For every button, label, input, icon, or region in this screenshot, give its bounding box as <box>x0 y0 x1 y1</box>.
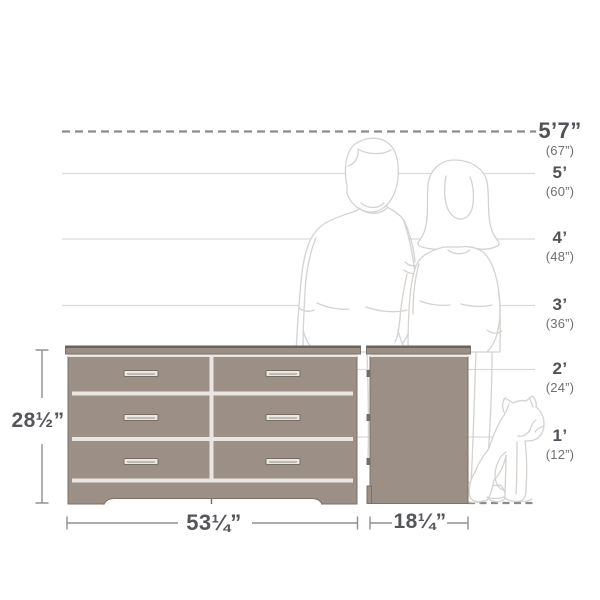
height-mark-sub: (12”) <box>524 446 596 463</box>
drawer-handle <box>266 415 300 421</box>
height-mark-label: 2’ <box>524 359 596 379</box>
side-handle-tab <box>367 458 371 465</box>
diagram-canvas <box>0 0 600 600</box>
dresser-top-edge <box>66 346 361 349</box>
height-mark-sub: (48”) <box>524 248 596 265</box>
drawer-handle <box>124 459 158 465</box>
drawer-gap-center <box>210 357 214 483</box>
drawer-handle <box>124 371 158 377</box>
drawer-handle <box>124 415 158 421</box>
side-top-highlight <box>370 355 468 358</box>
height-mark-sub: (67”) <box>524 142 596 159</box>
height-mark-5ft: 5’ (60”) <box>524 163 596 200</box>
height-mark-2ft: 2’ (24”) <box>524 359 596 396</box>
height-mark-sub: (60”) <box>524 183 596 200</box>
height-mark-label: 5’7” <box>524 119 596 142</box>
side-top-edge <box>367 346 471 349</box>
width-measurement-label: 53¼” <box>166 510 262 536</box>
height-mark-1ft: 1’ (12”) <box>524 426 596 463</box>
side-handle-tab <box>367 414 371 421</box>
side-handle-tab <box>367 370 371 377</box>
height-mark-label: 3’ <box>524 295 596 315</box>
drawer-handle <box>266 459 300 465</box>
height-mark-label: 4’ <box>524 228 596 248</box>
height-mark-sub: (36”) <box>524 315 596 332</box>
height-mark-sub: (24”) <box>524 379 596 396</box>
drawer-handle <box>266 371 300 377</box>
side-foot-lip <box>367 486 372 504</box>
height-mark-label: 1’ <box>524 426 596 446</box>
base-cutout <box>104 499 322 505</box>
height-measurement-label: 28½” <box>6 409 70 433</box>
side-body <box>370 357 468 504</box>
height-mark-5ft7: 5’7” (67”) <box>524 119 596 159</box>
depth-measurement-label: 18¼” <box>372 510 468 534</box>
dresser-front-view <box>66 346 361 505</box>
product-dimension-diagram: 5’7” (67”) 5’ (60”) 4’ (48”) 3’ (36”) 2’… <box>0 0 600 600</box>
dresser-side-view <box>367 346 471 504</box>
height-mark-label: 5’ <box>524 163 596 183</box>
height-mark-4ft: 4’ (48”) <box>524 228 596 265</box>
height-mark-3ft: 3’ (36”) <box>524 295 596 332</box>
